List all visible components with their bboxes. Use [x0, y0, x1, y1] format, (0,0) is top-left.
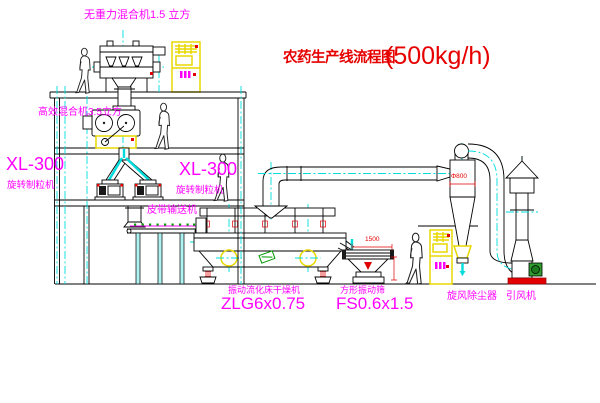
screen-model-label: FS0.6x1.5 — [336, 295, 414, 313]
belt-conveyor-label: 皮带输送机 — [147, 206, 197, 217]
dryer-model-label: ZLG6x0.75 — [221, 295, 305, 313]
control-cabinet-bottom — [430, 230, 452, 284]
cad-flow-diagram: 无重力混合机1.5 立方 农药生产线流程图 (500kg/h) 高效混合机3.5… — [0, 0, 600, 403]
granulator-left-model-label: XL-300 — [6, 155, 64, 174]
diagram-title: 农药生产线流程图 — [283, 51, 395, 66]
vibrating-screen — [338, 239, 397, 283]
diagram-capacity: (500kg/h) — [385, 43, 491, 69]
fan-label: 引风机 — [506, 292, 536, 303]
screen-dimension-text: 1500 — [365, 237, 379, 244]
material-dots — [134, 224, 195, 226]
high-eff-mixer-label: 高效混合机3.5立方 — [38, 108, 122, 119]
granulator-mid-model-label: XL-300 — [179, 160, 237, 179]
granulator-left-name-label: 旋转制粒机 — [7, 181, 55, 191]
rotary-granulator-right — [133, 180, 163, 200]
control-cabinet-top — [170, 42, 202, 92]
belt-conveyor — [127, 224, 200, 285]
cyclone-dimension-text: Φ800 — [451, 174, 467, 181]
discharge-chutes — [106, 148, 152, 180]
granulator-mid-name-label: 旋转制粒机 — [176, 186, 224, 196]
induced-draft-fan — [508, 261, 546, 284]
rotary-granulator-left — [95, 180, 125, 200]
cyclone-label: 旋风除尘器 — [447, 292, 497, 303]
gravity-mixer-label: 无重力混合机1.5 立方 — [84, 10, 190, 22]
